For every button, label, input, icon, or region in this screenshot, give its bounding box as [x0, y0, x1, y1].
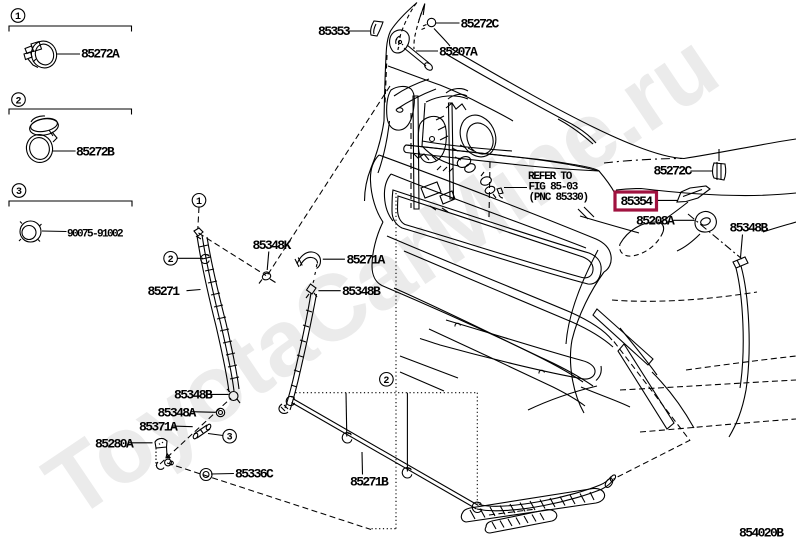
svg-text:85271B: 85271B	[350, 475, 389, 490]
svg-text:90075-91002: 90075-91002	[67, 229, 123, 241]
svg-text:85271A: 85271A	[347, 253, 386, 268]
svg-text:85271: 85271	[148, 284, 181, 299]
svg-text:85354: 85354	[621, 194, 654, 209]
svg-text:85348K: 85348K	[253, 238, 292, 253]
svg-text:1: 1	[15, 12, 21, 23]
svg-text:85280A: 85280A	[95, 437, 134, 452]
svg-text:85348B: 85348B	[174, 388, 213, 403]
svg-text:3: 3	[16, 187, 22, 198]
svg-text:85348B: 85348B	[730, 221, 769, 236]
svg-text:85348B: 85348B	[342, 284, 381, 299]
svg-text:85371A: 85371A	[139, 420, 178, 435]
svg-text:2: 2	[168, 255, 174, 266]
svg-text:2: 2	[15, 96, 21, 107]
svg-text:85208A: 85208A	[636, 214, 675, 229]
svg-text:85272C: 85272C	[461, 17, 500, 32]
svg-text:85336C: 85336C	[235, 467, 274, 482]
svg-text:2: 2	[383, 376, 389, 387]
svg-text:85272A: 85272A	[81, 47, 120, 62]
svg-text:85348A: 85348A	[158, 406, 197, 421]
svg-text:85272C: 85272C	[654, 164, 693, 179]
svg-text:854020B: 854020B	[739, 526, 784, 541]
svg-text:85207A: 85207A	[439, 45, 478, 60]
svg-text:(PNC 85330): (PNC 85330)	[529, 192, 588, 204]
svg-text:1: 1	[196, 197, 202, 208]
svg-text:85272B: 85272B	[76, 145, 115, 160]
svg-text:3: 3	[227, 433, 233, 444]
svg-text:85353: 85353	[318, 24, 351, 39]
